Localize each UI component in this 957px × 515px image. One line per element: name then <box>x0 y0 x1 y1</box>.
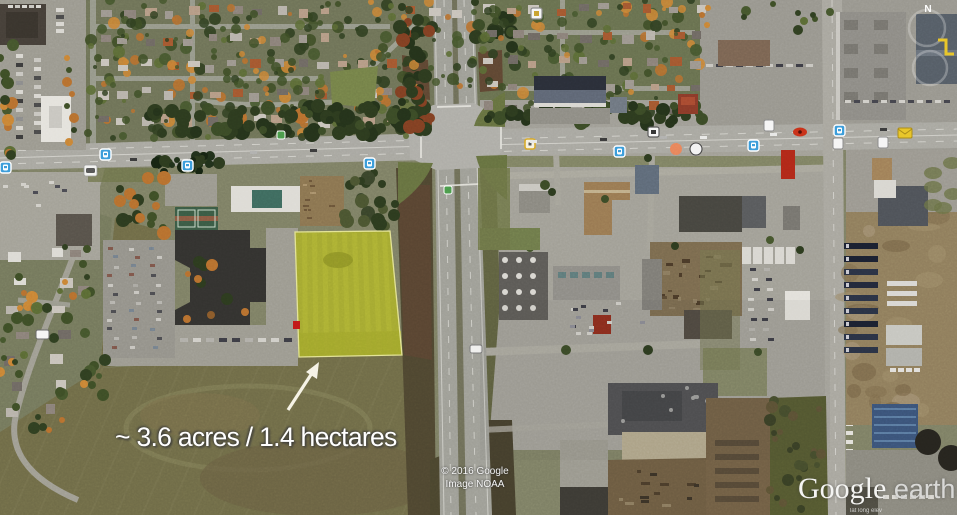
svg-text:lat long elev: lat long elev <box>850 508 882 514</box>
svg-text:Image NOAA: Image NOAA <box>446 479 505 490</box>
svg-text:© 2016 Google: © 2016 Google <box>441 466 509 477</box>
svg-text:Google earth: Google earth <box>798 472 955 505</box>
svg-text:~ 3.6 acres / 1.4 hectares: ~ 3.6 acres / 1.4 hectares <box>115 422 397 452</box>
